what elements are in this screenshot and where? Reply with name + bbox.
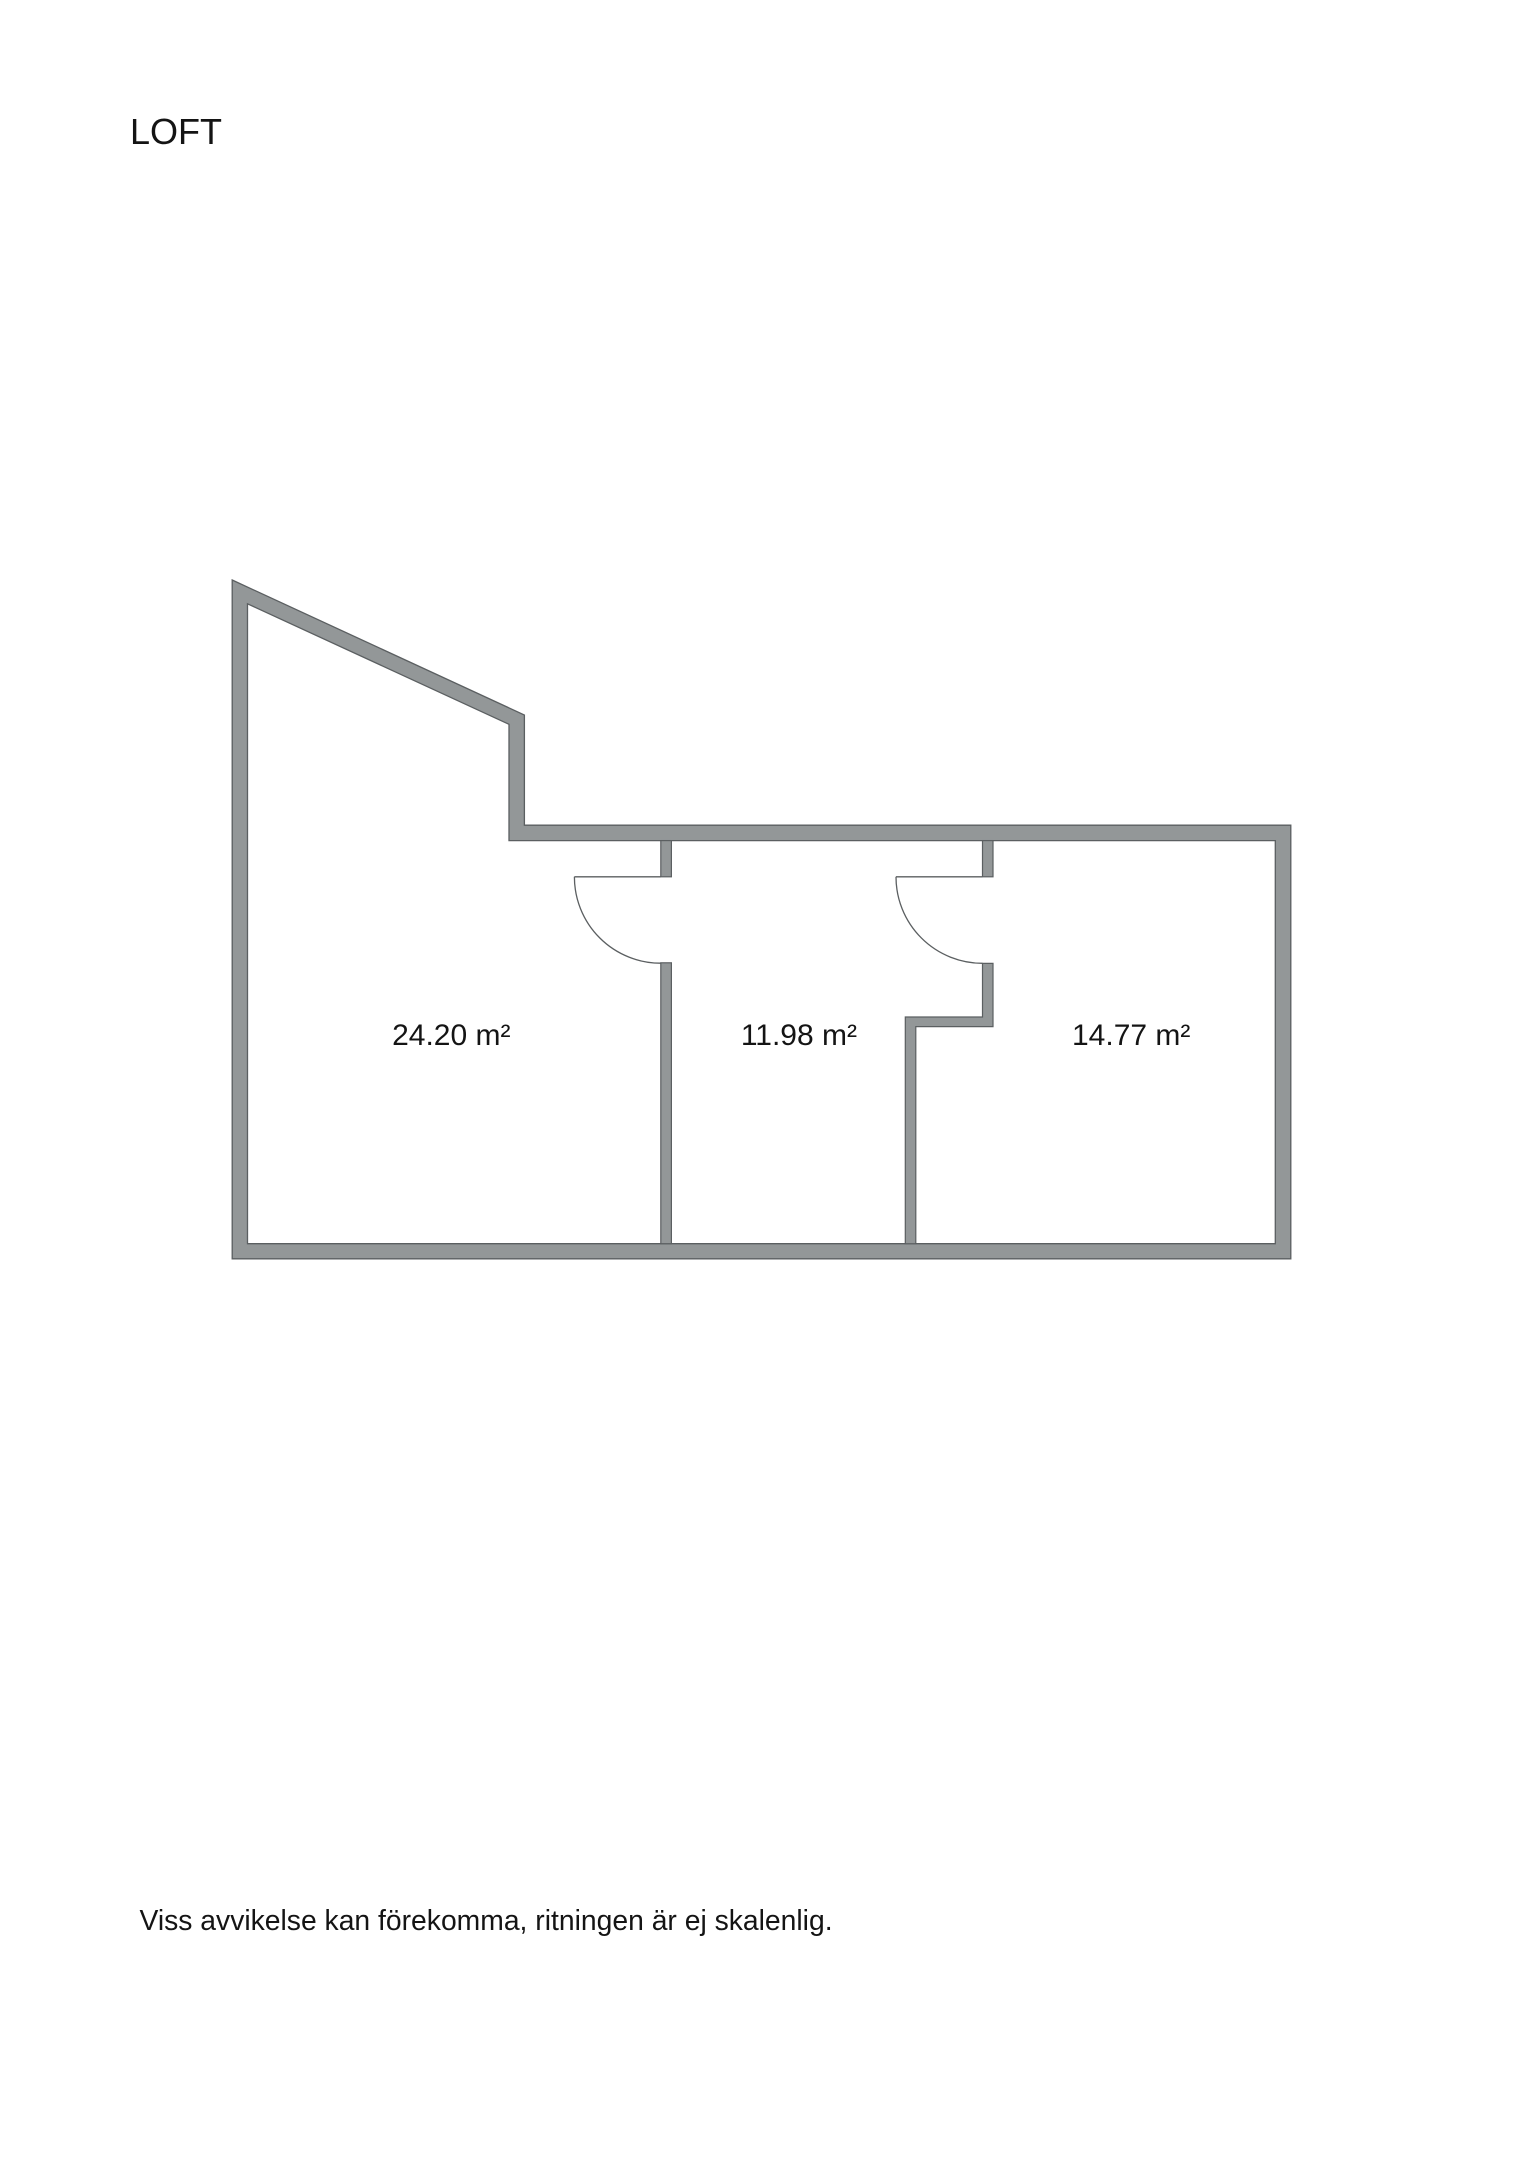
svg-text:14.77 m²: 14.77 m² bbox=[1072, 1019, 1190, 1052]
svg-text:LOFT: LOFT bbox=[130, 111, 222, 152]
svg-text:Viss avvikelse kan förekomma,: Viss avvikelse kan förekomma, ritningen … bbox=[140, 1904, 833, 1936]
svg-text:24.20 m²: 24.20 m² bbox=[392, 1019, 510, 1052]
svg-text:11.98 m²: 11.98 m² bbox=[741, 1019, 857, 1052]
